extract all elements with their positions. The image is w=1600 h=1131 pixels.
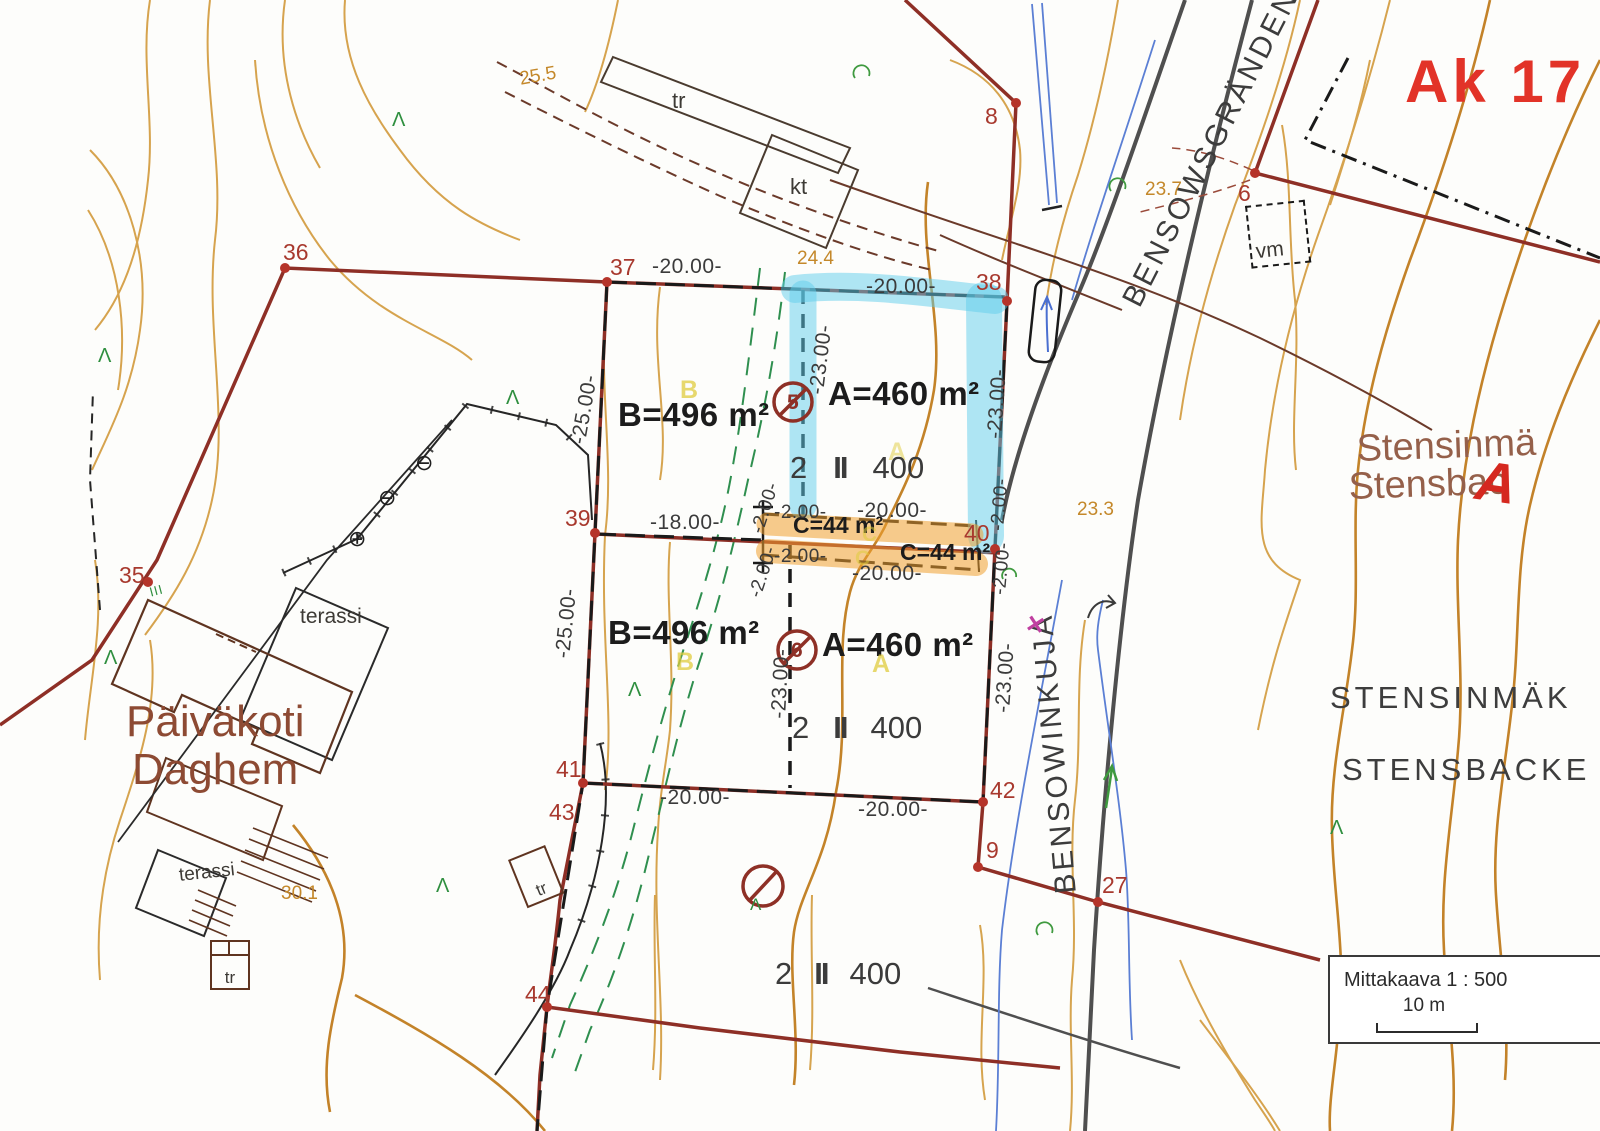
contour-line: [255, 60, 472, 360]
boundary-point-9: 9: [986, 839, 999, 862]
boundary-point-8: 8: [985, 105, 998, 128]
plot-number: 2: [792, 712, 809, 743]
dim-20m: -20.00-: [857, 500, 927, 521]
tr-box-divider-tick: [228, 942, 230, 954]
spot-height-23-3: 23.3: [1077, 500, 1114, 519]
dim-2m: -2.00-: [774, 503, 827, 522]
building-right: 400: [872, 452, 924, 483]
place-stensbacka-caps: STENSBACKE: [1342, 754, 1590, 785]
fence-ticks: [283, 404, 588, 573]
parcel-letter-b-lower: B: [676, 650, 694, 675]
dim-23m: -23.00-: [992, 642, 1018, 713]
spot-height-30-1: 30.1: [281, 884, 318, 903]
contour-line: [1282, 125, 1296, 470]
boundary-point-27: 27: [1102, 874, 1128, 897]
plan-code: Ak 17: [1405, 52, 1585, 112]
contour-line: [85, 560, 98, 740]
floor-count: II: [814, 958, 827, 989]
place-daghem: Daghem: [132, 748, 298, 792]
dim-23m: -23.00-: [984, 368, 1010, 439]
deciduous-tree-symbol: [1036, 922, 1052, 935]
terassi-label-upper: terassi: [300, 606, 362, 627]
dim-20m: -20.00-: [866, 276, 936, 297]
conifer-symbol: Λ: [392, 110, 405, 130]
conifer-symbol: Λ: [104, 648, 117, 668]
vm-label: vm: [1255, 237, 1285, 264]
building-right: 400: [849, 958, 901, 989]
deciduous-tree-symbol: [853, 65, 869, 78]
footpath-dashed: [505, 92, 932, 270]
dim-2m: -2.00-: [988, 478, 1012, 532]
area-label-b-lower: B=496 m²: [608, 616, 760, 649]
scale-bar: [1376, 1023, 1478, 1033]
tr-box-divider: [212, 954, 248, 956]
removal-mark-number-5: 5: [787, 392, 799, 413]
area-label-a-upper: A=460 m²: [828, 377, 980, 410]
floor-count: II: [833, 712, 846, 743]
contour-line: [1046, 0, 1118, 305]
area-label-a-lower: A=460 m²: [822, 628, 974, 661]
survey-marker-icon: ⊖: [415, 452, 433, 474]
boundary-point-44: 44: [525, 983, 551, 1006]
place-stensinmaki-caps: STENSINMÄK: [1330, 682, 1572, 713]
building-inner-dashed: [216, 634, 256, 652]
scale-title: Mittakaava 1 : 500: [1344, 969, 1507, 992]
spot-height-24-4: 24.4: [797, 249, 834, 268]
dim-20m: -20.00-: [852, 563, 922, 584]
conifer-symbol: Λ: [506, 388, 519, 408]
boundary-point-6: 6: [1238, 182, 1251, 205]
spot-height-23-7: 23.7: [1145, 180, 1182, 199]
contour-line: [293, 825, 344, 1112]
overlay-letter-a: A: [1472, 452, 1520, 513]
conifer-symbol: Λ: [436, 876, 449, 896]
parcel-letter-a-lower: A: [872, 652, 890, 677]
island-arrow: [1041, 297, 1052, 352]
building-outline-shed: [601, 57, 850, 173]
ditch-line: [1042, 3, 1057, 203]
road-edge-line: [928, 988, 1180, 1068]
dim-23m: -23.00-: [768, 648, 793, 719]
footpath-dashed: [497, 62, 942, 252]
contour-line: [344, 0, 520, 240]
contour-line: [657, 287, 663, 480]
building-label-kt: kt: [790, 176, 807, 198]
vm-marker-box: vm: [1245, 200, 1311, 269]
place-paivakoti: Päiväkoti: [126, 700, 305, 744]
plot-info-row-bottom: 2 II 400: [775, 958, 901, 989]
scale-box: Mittakaava 1 : 500 10 m: [1328, 955, 1600, 1044]
fence-line: [495, 743, 606, 1075]
ditch-line: [1032, 4, 1049, 205]
contour-line: [145, 0, 219, 635]
scale-bar-label: 10 m: [1374, 995, 1474, 1017]
boundary-point-38: 38: [976, 271, 1002, 294]
survey-marker-icon: ⊖: [378, 487, 396, 509]
floor-count: II: [833, 452, 846, 483]
contour-line: [283, 0, 320, 168]
boundary-point-40: 40: [964, 522, 990, 545]
conifer-symbol: Λ: [750, 896, 761, 913]
contour-line: [653, 895, 655, 1070]
dim-2m: -2.00-: [774, 547, 827, 566]
contour-line: [355, 995, 545, 1131]
boundary-point-37: 37: [610, 256, 636, 279]
boundary-point-39: 39: [565, 507, 591, 530]
dim-20m: -20.00-: [660, 787, 730, 808]
dim-2m: -2.00-: [990, 542, 1014, 596]
plot-info-row-lower: 2 II 400: [792, 712, 922, 743]
parcel-letter-c-upper: C: [862, 524, 877, 545]
ditch-end-tick: [1042, 206, 1062, 210]
boundary-dashed-left-edge: [90, 390, 100, 610]
tr-box-lower: tr: [210, 940, 250, 990]
dim-20m: -20.00-: [858, 799, 928, 820]
dim-18m: -18.00-: [650, 512, 720, 533]
contour-line: [1180, 960, 1275, 1131]
survey-marker-icon: ⊕: [348, 528, 366, 550]
boundary-point-42: 42: [990, 779, 1016, 802]
road-edge-line: [1085, 0, 1252, 1131]
contour-line: [980, 925, 985, 1100]
plot-info-row-upper: 2 II 400: [790, 452, 924, 483]
contour-line: [90, 150, 143, 470]
tr-label: tr: [225, 968, 235, 988]
buildings: [112, 57, 858, 936]
dim-20m: -20.00-: [652, 256, 722, 277]
boundary-point-36: 36: [283, 241, 309, 264]
conifer-symbol: Λ: [98, 346, 111, 366]
conifer-symbol: Λ: [628, 680, 641, 700]
building-right: 400: [870, 712, 922, 743]
contour-line: [604, 300, 609, 790]
conifer-symbol: Λ: [1330, 818, 1343, 838]
boundary-point-41: 41: [556, 758, 582, 781]
iii-mark: III: [148, 582, 165, 598]
plot-number: 2: [775, 958, 792, 989]
boundary-point-43: 43: [549, 801, 575, 824]
boundary-point-35: 35: [119, 564, 145, 587]
tr-label: tr: [533, 878, 550, 900]
removal-mark-7: [743, 866, 783, 906]
scanned-detail-plan-map: { "plan_code": "Ak 17", "streets": { "be…: [0, 0, 1600, 1131]
removal-mark-number-6: 6: [791, 640, 803, 661]
parcel-letter-b-upper: B: [680, 378, 698, 403]
plot-number: 2: [790, 452, 807, 483]
building-label-tr: tr: [672, 90, 685, 112]
fence-line: [283, 404, 592, 573]
